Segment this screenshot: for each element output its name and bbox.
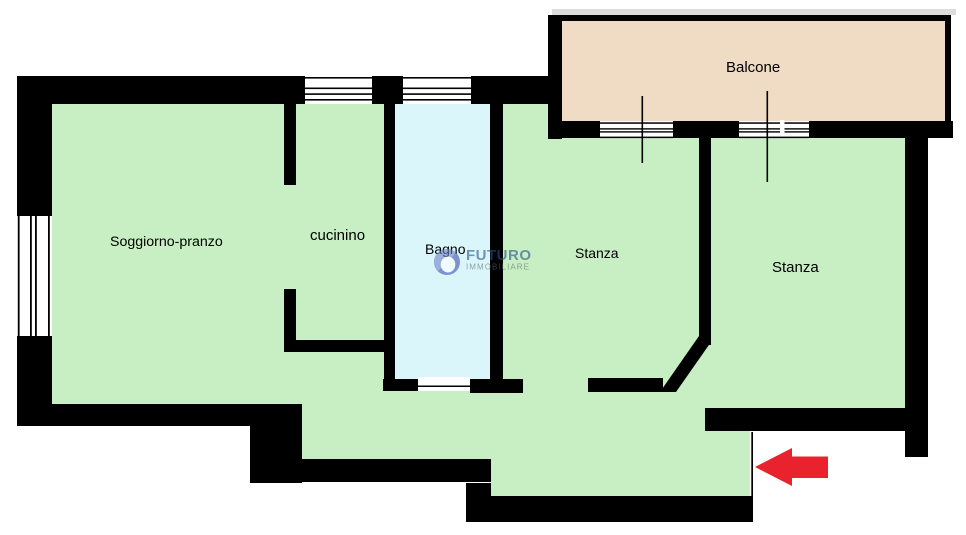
svg-text:cucinino: cucinino [310,227,365,244]
svg-text:IMMOBILIARE: IMMOBILIARE [466,263,530,272]
svg-text:FUTURO: FUTURO [466,247,532,264]
svg-text:Stanza: Stanza [575,245,619,261]
svg-text:Stanza: Stanza [772,259,819,276]
svg-text:Balcone: Balcone [726,59,780,76]
svg-text:Soggiorno-pranzo: Soggiorno-pranzo [110,234,223,250]
